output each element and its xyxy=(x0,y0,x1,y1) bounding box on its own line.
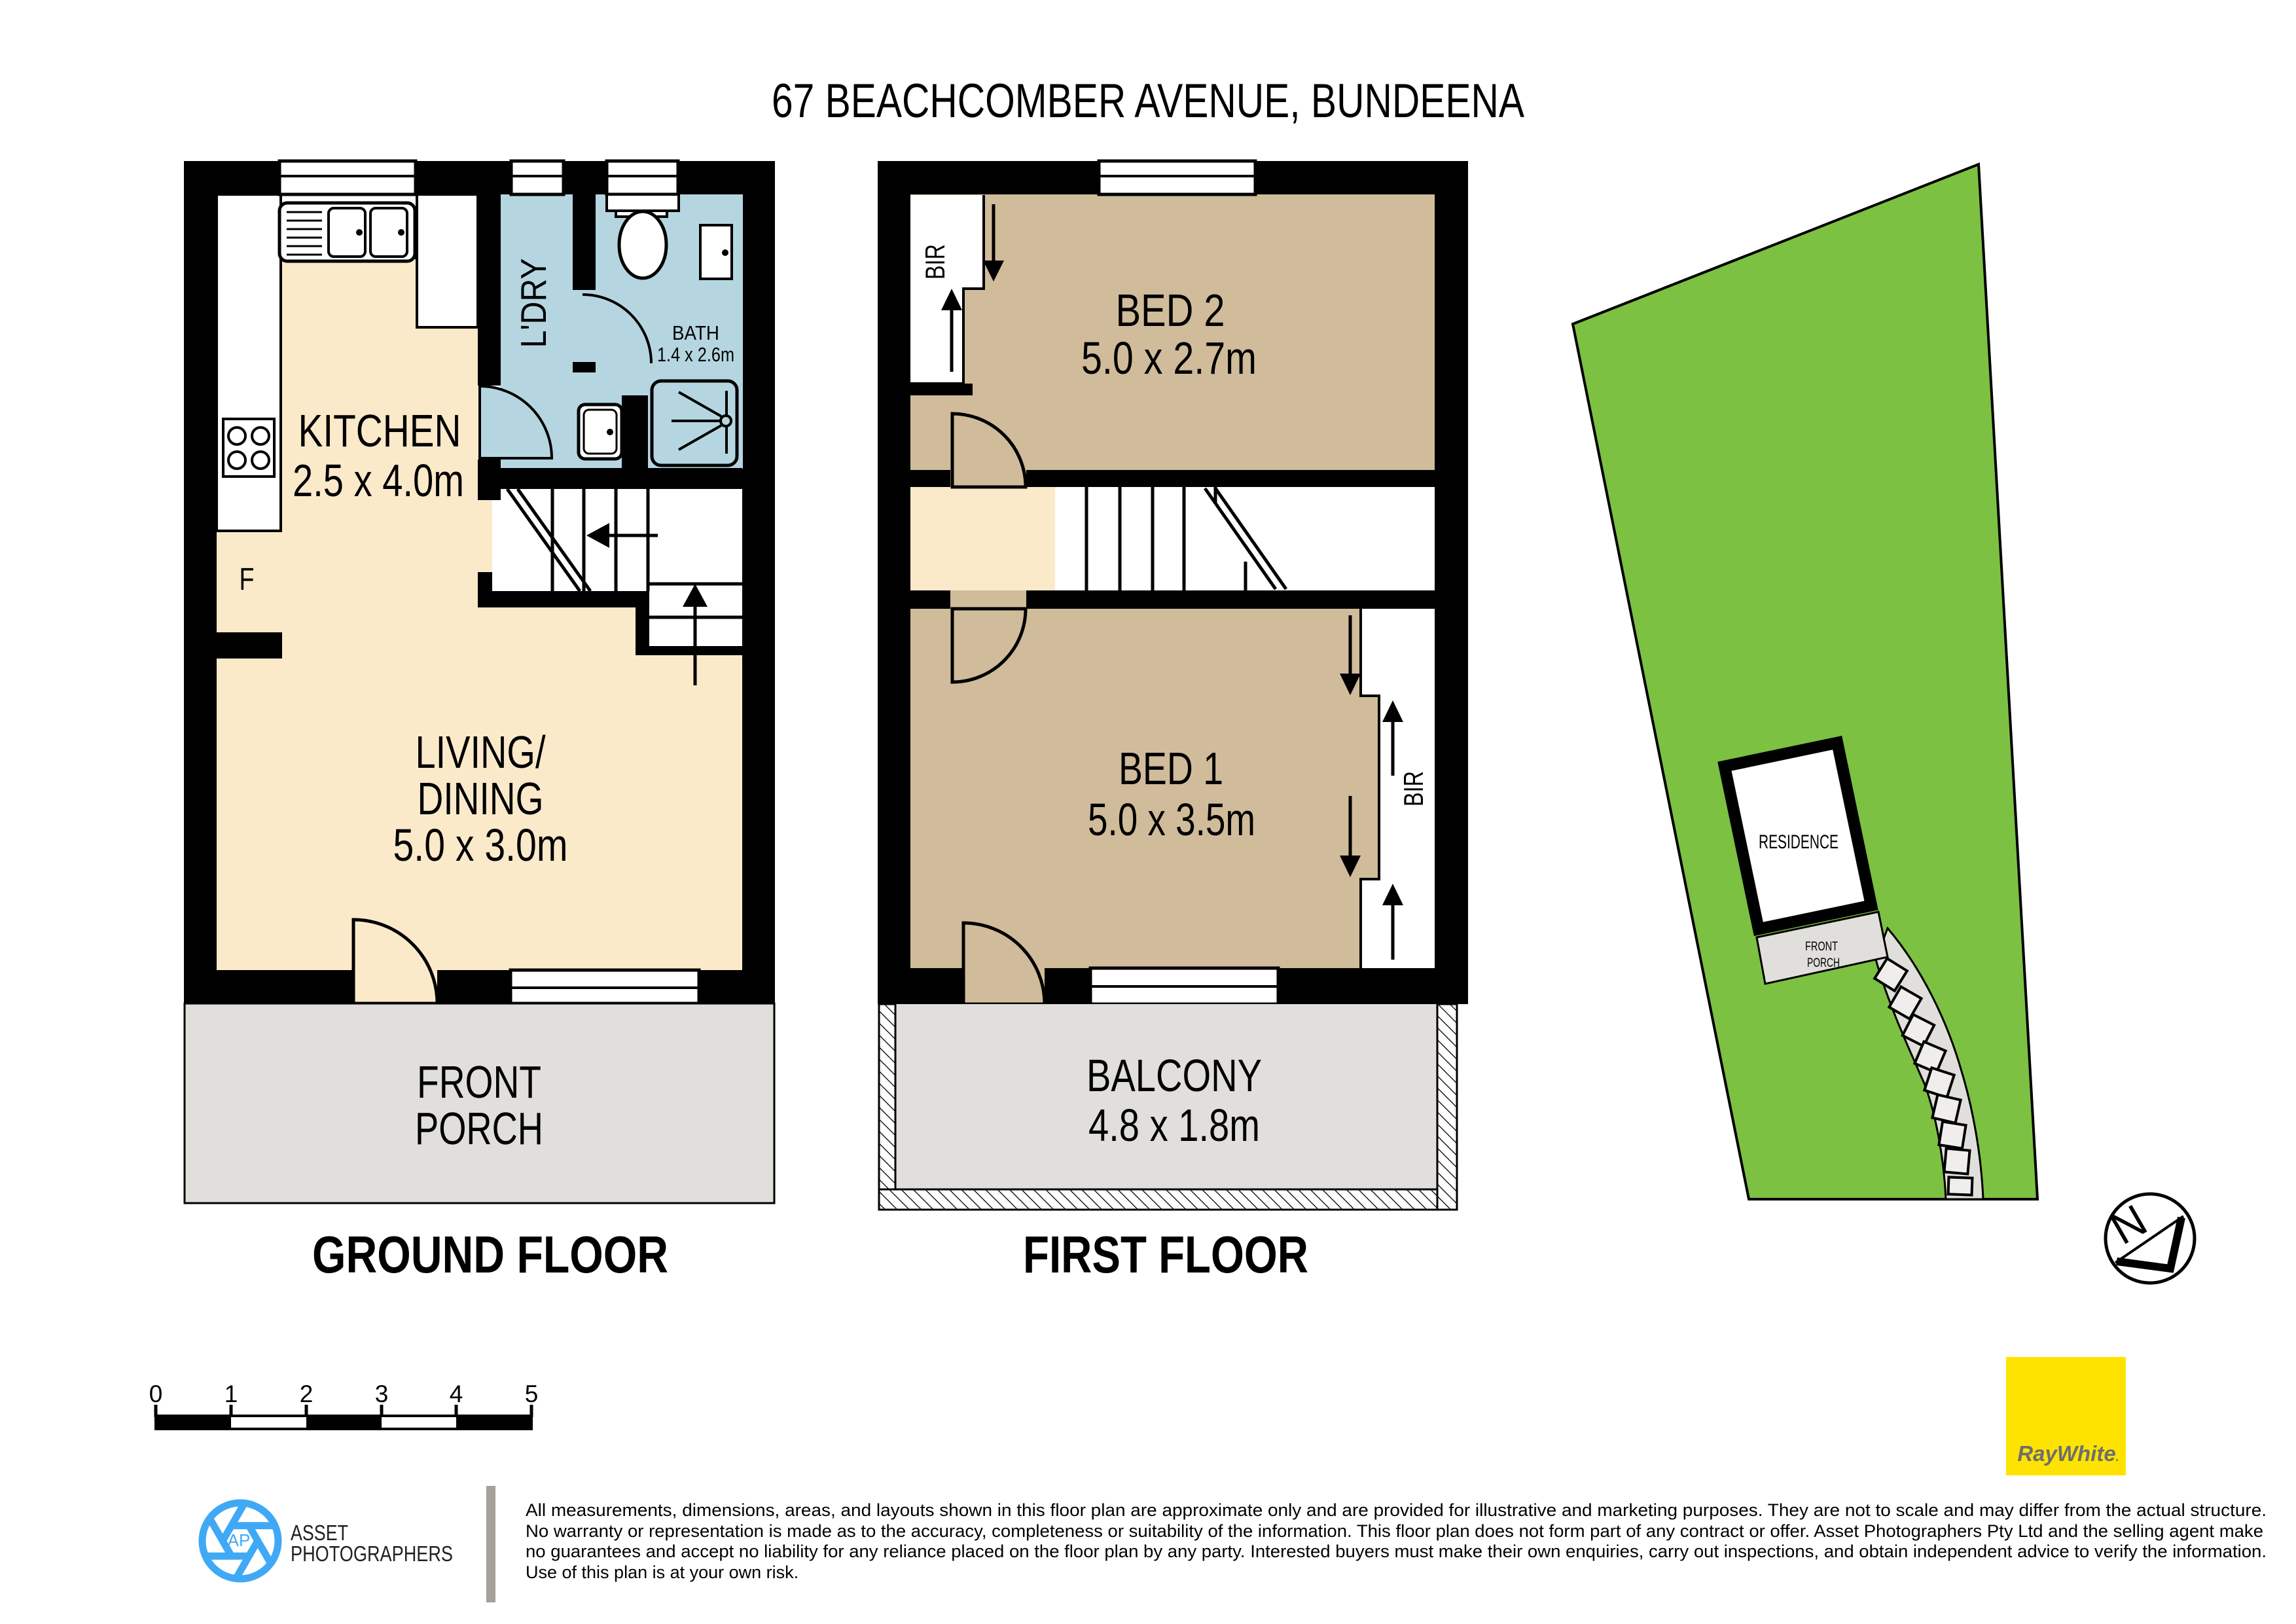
svg-text:5: 5 xyxy=(525,1380,539,1407)
svg-text:L'DRY: L'DRY xyxy=(513,259,554,348)
svg-text:F: F xyxy=(240,562,255,597)
svg-text:2.5 x 4.0m: 2.5 x 4.0m xyxy=(293,455,464,506)
svg-text:PHOTOGRAPHERS: PHOTOGRAPHERS xyxy=(291,1542,453,1566)
svg-text:AP: AP xyxy=(228,1530,251,1550)
svg-text:No warranty or representation: No warranty or representation is made as… xyxy=(526,1521,2263,1541)
svg-text:5.0 x 3.0m: 5.0 x 3.0m xyxy=(393,820,568,871)
svg-text:BIR: BIR xyxy=(920,244,950,280)
svg-text:PORCH: PORCH xyxy=(1807,956,1840,970)
svg-text:FIRST FLOOR: FIRST FLOOR xyxy=(1023,1225,1308,1284)
svg-text:LIVING/: LIVING/ xyxy=(416,727,546,778)
svg-text:67 BEACHCOMBER AVENUE, BUNDEEN: 67 BEACHCOMBER AVENUE, BUNDEENA xyxy=(772,75,1524,128)
svg-text:BIR: BIR xyxy=(1398,771,1429,806)
svg-text:BATH: BATH xyxy=(672,321,719,344)
svg-text:2: 2 xyxy=(300,1380,314,1407)
svg-text:5.0 x 3.5m: 5.0 x 3.5m xyxy=(1088,794,1255,845)
svg-text:GROUND FLOOR: GROUND FLOOR xyxy=(312,1225,668,1284)
svg-text:RayWhite.: RayWhite. xyxy=(2017,1441,2119,1466)
svg-text:Use of this plan is at your ow: Use of this plan is at your own risk. xyxy=(526,1562,798,1582)
svg-text:All measurements, dimensions,: All measurements, dimensions, areas, and… xyxy=(526,1500,2267,1520)
svg-text:KITCHEN: KITCHEN xyxy=(298,405,461,456)
svg-text:4.8 x 1.8m: 4.8 x 1.8m xyxy=(1088,1100,1260,1151)
svg-text:FRONT: FRONT xyxy=(417,1056,541,1108)
svg-text:BED 1: BED 1 xyxy=(1119,743,1223,794)
svg-text:DINING: DINING xyxy=(418,773,544,824)
svg-text:4: 4 xyxy=(450,1380,463,1407)
svg-text:RESIDENCE: RESIDENCE xyxy=(1759,831,1839,853)
svg-text:BALCONY: BALCONY xyxy=(1086,1050,1262,1101)
svg-text:PORCH: PORCH xyxy=(415,1103,543,1154)
svg-text:FRONT: FRONT xyxy=(1805,940,1838,954)
svg-text:1: 1 xyxy=(224,1380,238,1407)
svg-text:1.4 x 2.6m: 1.4 x 2.6m xyxy=(657,343,734,366)
svg-text:0: 0 xyxy=(149,1380,163,1407)
svg-text:3: 3 xyxy=(375,1380,389,1407)
svg-text:no guarantees and accept no li: no guarantees and accept no liability fo… xyxy=(526,1542,2267,1561)
svg-text:BED 2: BED 2 xyxy=(1116,285,1225,336)
svg-text:5.0 x 2.7m: 5.0 x 2.7m xyxy=(1081,333,1257,384)
